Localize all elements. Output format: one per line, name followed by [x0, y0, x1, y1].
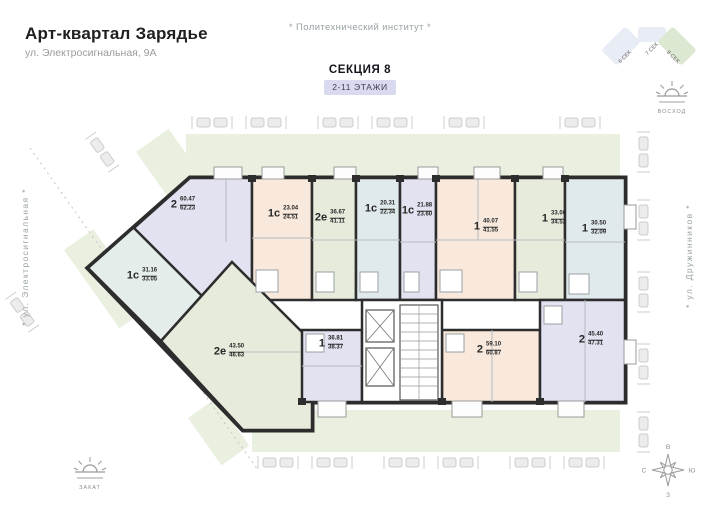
apartment-type: 1 [474, 222, 480, 233]
apartment-living-area: 20.31 [380, 201, 395, 210]
page-subtitle: ул. Электросигнальная, 9А [25, 47, 208, 59]
apartment-label: 2 60.4762.23 [171, 197, 195, 214]
apartment-living-area: 33.00 [551, 211, 566, 220]
parking-row-top [192, 116, 600, 129]
stairwell-core [362, 300, 442, 402]
apartment-living-area: 21.88 [417, 203, 432, 212]
compass-south: Ю [689, 468, 696, 475]
apartment-total-area: 47.31 [588, 341, 603, 349]
apartment-total-area: 24.51 [283, 215, 298, 223]
apartment-total-area: 41.11 [330, 219, 345, 227]
apartment-label: 1с 21.8823.60 [402, 203, 432, 220]
section-block: СЕКЦИЯ 8 2-11 ЭТАЖИ [0, 64, 720, 95]
apartment-total-area: 60.87 [486, 351, 501, 359]
apartment-total-area: 41.55 [483, 228, 498, 236]
street-label-right: * ул. Дружинников * [684, 204, 694, 308]
parking-row-bottom [258, 456, 604, 469]
apartment-type: 1 [582, 224, 588, 235]
apartment-type: 2е [315, 213, 327, 224]
apartment-total-area: 23.60 [417, 212, 432, 220]
compass-west: З [666, 492, 670, 499]
apartment-total-area: 33.05 [142, 277, 157, 285]
section-minimap: 6 СЕК 7 СЕК 8 СЕК [601, 26, 697, 66]
apartment-label: 1 30.5032.09 [582, 221, 606, 238]
landmark-top: * Политехнический институт * [160, 22, 560, 33]
apartment-type: 2е [214, 347, 226, 358]
apartment-total-area: 62.23 [180, 206, 195, 214]
apartment-living-area: 45.40 [588, 332, 603, 341]
apartment-living-area: 36.81 [328, 336, 343, 345]
apartment-label: 1 33.0034.52 [542, 211, 566, 228]
apartment-living-area: 31.16 [142, 268, 157, 277]
floorplan-page: 6 СЕК 7 СЕК 8 СЕК ВОСХОД ЗАКАТ В Ю З С А… [0, 0, 720, 526]
apartment-label: 1 40.0741.55 [474, 219, 498, 236]
apartment-living-area: 36.67 [330, 210, 345, 219]
apartment-label: 1с 31.1633.05 [127, 268, 157, 285]
apartment-living-area: 40.07 [483, 219, 498, 228]
apartment-total-area: 32.09 [591, 230, 606, 238]
apartment-living-area: 23.04 [283, 206, 298, 215]
apartment-label: 2 59.1060.87 [477, 342, 501, 359]
apartment-total-area: 38.37 [328, 345, 343, 353]
apartment-type: 1с [402, 206, 414, 217]
apartment-label: 1 36.8138.37 [319, 336, 343, 353]
apartment-label: 2 45.4047.31 [579, 332, 603, 349]
compass-north: С [642, 468, 647, 475]
apartment-type: 2 [477, 345, 483, 356]
section-title: СЕКЦИЯ 8 [0, 64, 720, 76]
apartment-label: 1с 23.0424.51 [268, 206, 298, 223]
apartment-type: 2 [579, 335, 585, 346]
apartment-label: 2е 43.5046.63 [214, 344, 244, 361]
apartment-total-area: 46.63 [229, 353, 244, 361]
apartment-label: 2е 36.6741.11 [315, 210, 345, 227]
apartment-living-area: 43.50 [229, 344, 244, 353]
apartment-living-area: 30.50 [591, 221, 606, 230]
apartment-type: 1с [127, 271, 139, 282]
street-label-left: * ул. Электросигнальная * [20, 188, 30, 326]
apartment-label: 1с 20.3122.34 [365, 201, 395, 218]
floors-badge: 2-11 ЭТАЖИ [324, 80, 395, 95]
sunset-icon: ЗАКАТ [74, 457, 106, 491]
apartment-living-area: 59.10 [486, 342, 501, 351]
apartment-type: 1 [319, 339, 325, 350]
sunrise-label: ВОСХОД [658, 109, 687, 115]
apartment-total-area: 34.52 [551, 220, 566, 228]
compass-east: В [666, 444, 670, 451]
minimap-label-7: 7 СЕК [645, 41, 661, 57]
sunset-label: ЗАКАТ [79, 485, 101, 491]
apartment-type: 2 [171, 200, 177, 211]
apartment-total-area: 22.34 [380, 210, 395, 218]
apartment-living-area: 60.47 [180, 197, 195, 206]
apartment-type: 1 [542, 214, 548, 225]
apartment-type: 1с [268, 209, 280, 220]
apartment-type: 1с [365, 204, 377, 215]
parking-column-right [637, 132, 650, 452]
